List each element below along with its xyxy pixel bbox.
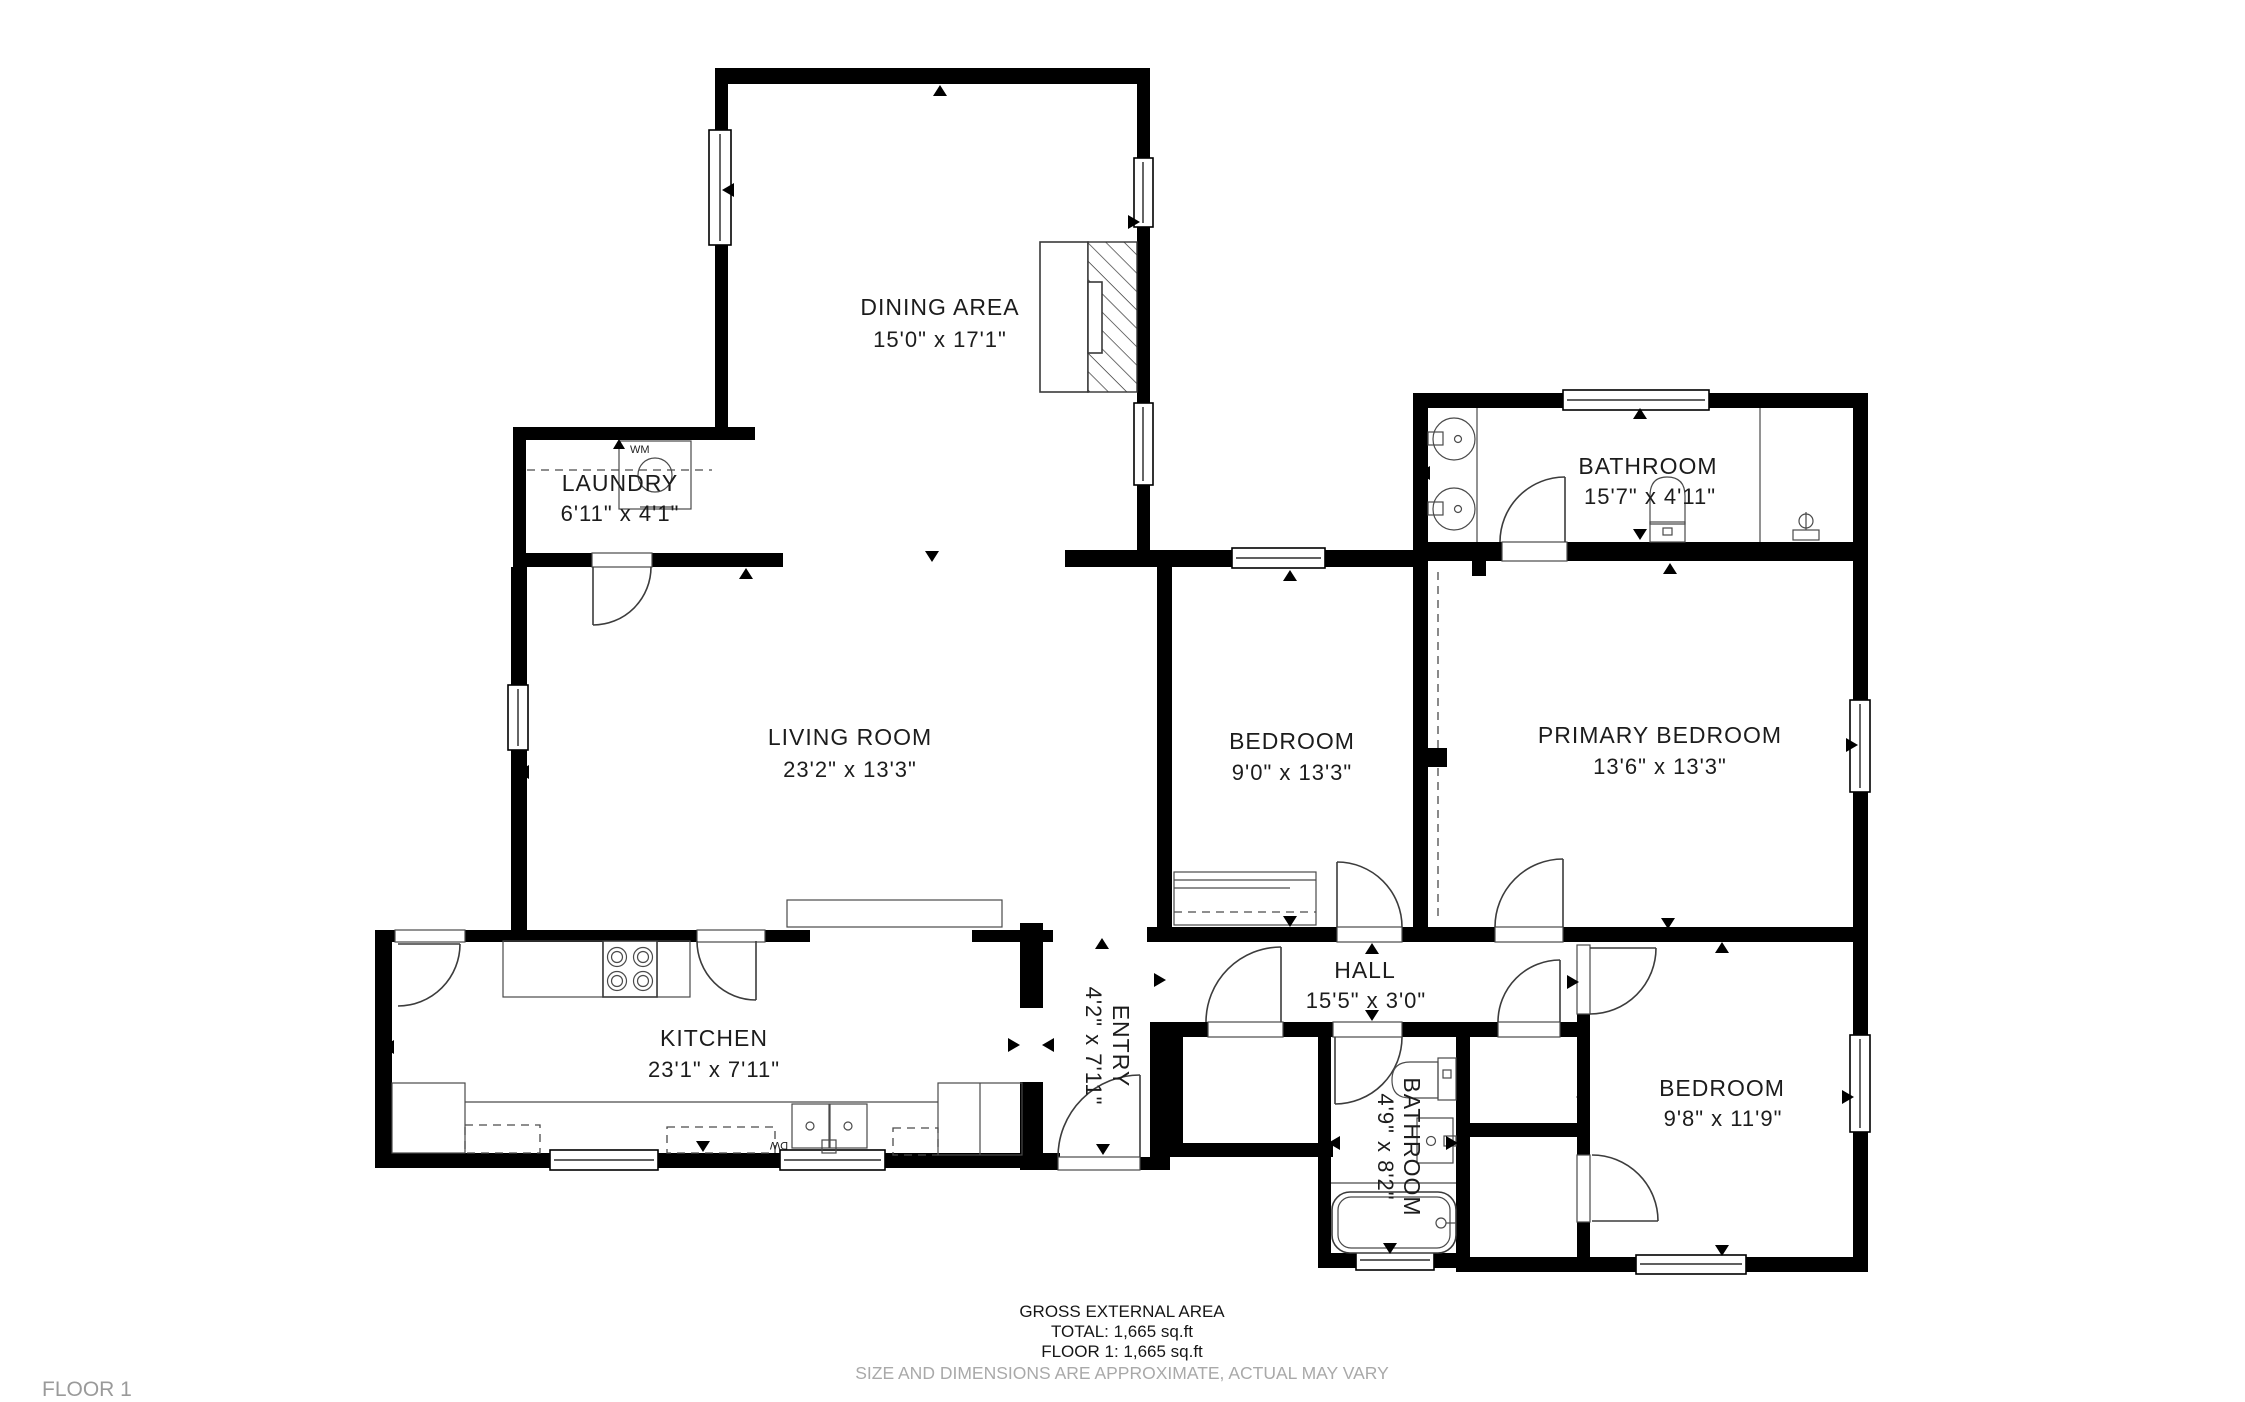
fireplace-icon — [1040, 242, 1137, 392]
window — [550, 1150, 658, 1170]
room-label-living: LIVING ROOM — [768, 724, 932, 750]
footer-area-title: GROSS EXTERNAL AREA — [1019, 1302, 1225, 1321]
room-dims-laundry: 6'11" x 4'1" — [561, 501, 680, 526]
room-label-laundry: LAUNDRY — [562, 470, 679, 496]
dishwasher-label: DW — [769, 1139, 788, 1151]
wall-box — [1428, 748, 1447, 767]
room-label-primary: PRIMARY BEDROOM — [1538, 722, 1782, 748]
room-dims-living: 23'2" x 13'3" — [783, 757, 917, 782]
window — [1563, 390, 1709, 410]
room-label-hall: HALL — [1334, 957, 1396, 983]
footer-disclaimer: SIZE AND DIMENSIONS ARE APPROXIMATE, ACT… — [855, 1363, 1389, 1383]
window — [1232, 548, 1325, 568]
room-label-bathroom-bottom: BATHROOM — [1399, 1077, 1425, 1216]
window — [508, 685, 528, 750]
room-label-bathroom-top: BATHROOM — [1578, 453, 1717, 479]
window — [1134, 403, 1153, 485]
room-dims-entry: 4'2" x 7'11" — [1081, 987, 1106, 1106]
room-dims-bathroom-top: 15'7" x 4'11" — [1584, 484, 1716, 509]
room-label-bedroom-middle: BEDROOM — [1229, 728, 1355, 754]
footer-total: TOTAL: 1,665 sq.ft — [1051, 1322, 1193, 1341]
footer-floor-total: FLOOR 1: 1,665 sq.ft — [1041, 1342, 1203, 1361]
room-label-bedroom-right: BEDROOM — [1659, 1075, 1785, 1101]
room-dims-bedroom-middle: 9'0" x 13'3" — [1232, 760, 1352, 785]
room-label-entry: ENTRY — [1108, 1005, 1134, 1088]
window — [1356, 1251, 1434, 1270]
room-label-kitchen: KITCHEN — [660, 1025, 768, 1051]
room-dims-dining: 15'0" x 17'1" — [873, 327, 1007, 352]
room-dims-kitchen: 23'1" x 7'11" — [648, 1057, 780, 1082]
canvas-background — [0, 0, 2245, 1402]
window — [1134, 158, 1153, 227]
window — [1636, 1255, 1746, 1274]
room-label-dining: DINING AREA — [860, 294, 1019, 320]
window — [1850, 1035, 1870, 1132]
floor-plan: WM DW — [0, 0, 2245, 1402]
washer-label: WM — [630, 444, 650, 456]
room-dims-bedroom-right: 9'8" x 11'9" — [1664, 1106, 1783, 1131]
room-dims-hall: 15'5" x 3'0" — [1306, 988, 1426, 1013]
room-dims-bathroom-bottom: 4'9" x 8'2" — [1373, 1093, 1398, 1200]
floor-label: FLOOR 1 — [42, 1378, 132, 1401]
room-dims-primary: 13'6" x 13'3" — [1593, 754, 1727, 779]
stove-icon — [603, 941, 657, 997]
